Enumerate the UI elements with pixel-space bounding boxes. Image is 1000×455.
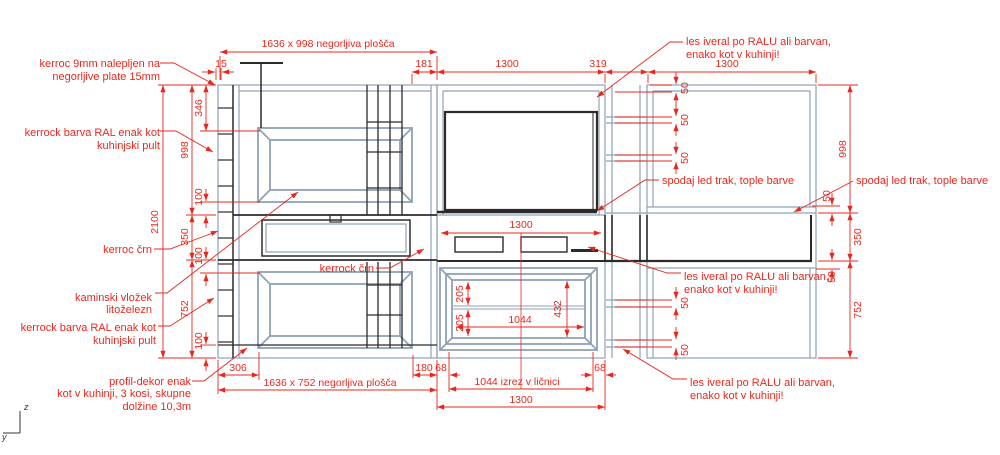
callout-kerroc-crn: kerroc črn	[103, 244, 152, 256]
profile-strips-upper	[367, 85, 402, 215]
flue-mark	[240, 63, 283, 128]
callout-kaminski-line1: kaminski vložek	[75, 292, 153, 304]
dim-205-b: 205	[454, 314, 466, 332]
wood-niche-outer	[262, 220, 410, 256]
dim-100-c: 100	[193, 332, 205, 350]
callout-spodaj-led-right: spodaj led trak, tople barve	[856, 175, 988, 187]
dim-50-shelf-a: 50	[679, 82, 691, 94]
dim-izrez: 1044 izrez v ličnici	[474, 376, 559, 388]
right-unit-outline	[605, 85, 816, 358]
dim-350-right: 350	[852, 228, 864, 246]
cad-canvas: 1636 x 998 negorljiva plošča 15 181 1300…	[0, 0, 1000, 455]
dim-1044: 1044	[508, 314, 532, 326]
dim-346: 346	[193, 99, 205, 117]
callout-kerrock-ral-bot-line2: kuhinjski pult	[93, 335, 156, 347]
dim-68-right: 68	[594, 362, 606, 374]
tile-strip	[218, 85, 233, 358]
callout-kerrock-ral-top-line2: kuhinjski pult	[97, 140, 160, 152]
interior-dimensions	[441, 233, 601, 389]
axis-z-label: z	[23, 402, 29, 412]
dim-181: 181	[415, 58, 433, 70]
dim-100-a: 100	[193, 188, 205, 206]
callout-les-iveral-mid-line1: les iveral po RALU ali barvan,	[684, 271, 829, 283]
niche-tab	[330, 215, 341, 222]
dim-68-left: 68	[435, 362, 447, 374]
dim-752-left: 752	[179, 300, 191, 318]
dim-2100: 2100	[149, 210, 161, 234]
callout-kerrock-crn-mid: kerrock črn	[320, 263, 374, 275]
elevation-drawing: 1636 x 998 negorljiva plošča 15 181 1300…	[0, 0, 1000, 455]
callout-les-iveral-top-line1: les iveral po RALU ali barvan,	[686, 36, 831, 48]
callout-spodaj-led-left: spodaj led trak, tople barve	[662, 175, 794, 187]
callout-kerrock-ral-bot-line1: kerrock barva RAL enak kot	[21, 322, 156, 334]
dim-100-b: 100	[193, 247, 205, 265]
dim-1300-bottom: 1300	[509, 394, 533, 406]
callout-profil-dekor-line2: kot v kuhinji, 3 kosi, skupne	[57, 388, 191, 400]
left-dimensions	[163, 85, 206, 371]
fireplace-lower-opening	[258, 272, 412, 348]
fireplace-unit-outline	[218, 85, 437, 358]
shelf-50-dimensions	[615, 72, 676, 360]
dim-1300-band: 1300	[509, 219, 533, 231]
dim-50-shelf-e: 50	[679, 344, 691, 356]
av-cabinet-front	[440, 268, 597, 350]
callout-kerroc9-line1: kerroc 9mm nalepljen na	[40, 58, 161, 70]
av-device-1	[455, 237, 503, 252]
callout-profil-dekor-line3: dolžine 10,3m	[123, 401, 192, 413]
dim-50-shelf-c: 50	[679, 152, 691, 164]
dim-998-right: 998	[837, 140, 849, 158]
dim-752-right: 752	[852, 301, 864, 319]
dim-998-left: 998	[179, 141, 191, 159]
ucs-axis-icon	[3, 411, 20, 433]
dim-306: 306	[229, 362, 247, 374]
callout-labels: kerroc 9mm nalepljen na negorljive plate…	[21, 36, 988, 413]
dim-15: 15	[215, 58, 227, 70]
ucs-axis-labels: z y	[1, 402, 29, 442]
callout-kerrock-ral-top-line1: kerrock barva RAL enak kot	[25, 127, 160, 139]
fireplace-upper-opening	[258, 128, 412, 202]
callout-les-iveral-top-line2: enako kot v kuhinji!	[686, 49, 780, 61]
dim-plate-top: 1636 x 998 negorljiva plošča	[261, 38, 394, 50]
dim-180: 180	[415, 362, 433, 374]
callout-les-iveral-bot-line1: les iveral po RALU ali barvan,	[690, 377, 835, 389]
dim-plate-bottom: 1636 x 752 negorljiva plošča	[263, 377, 396, 389]
wood-niche-inner	[266, 224, 406, 252]
callout-profil-dekor-line1: profil-dekor enak	[109, 376, 191, 388]
dim-205-a: 205	[454, 285, 466, 303]
dim-319: 319	[589, 58, 607, 70]
dimension-lines	[154, 42, 858, 410]
dim-432: 432	[552, 300, 564, 318]
callout-les-iveral-bot-line2: enako kot v kuhinji!	[690, 390, 784, 402]
dim-50-right-1: 50	[821, 190, 833, 202]
dim-50-shelf-d: 50	[679, 297, 691, 309]
callout-les-iveral-mid-line2: enako kot v kuhinji!	[684, 284, 778, 296]
right-dimensions	[812, 85, 850, 358]
tv-screen	[437, 112, 597, 212]
dim-50-shelf-b: 50	[679, 114, 691, 126]
dim-1300-top-left: 1300	[495, 58, 519, 70]
axis-y-label: y	[1, 432, 7, 442]
callout-kaminski-line2: litoželezn	[106, 304, 152, 316]
av-device-2	[521, 237, 567, 252]
right-niche-band	[605, 215, 812, 261]
callout-kerroc9-line2: negorljive plate 15mm	[52, 71, 160, 83]
dim-350-left: 350	[179, 228, 191, 246]
av-device-3	[571, 249, 598, 252]
